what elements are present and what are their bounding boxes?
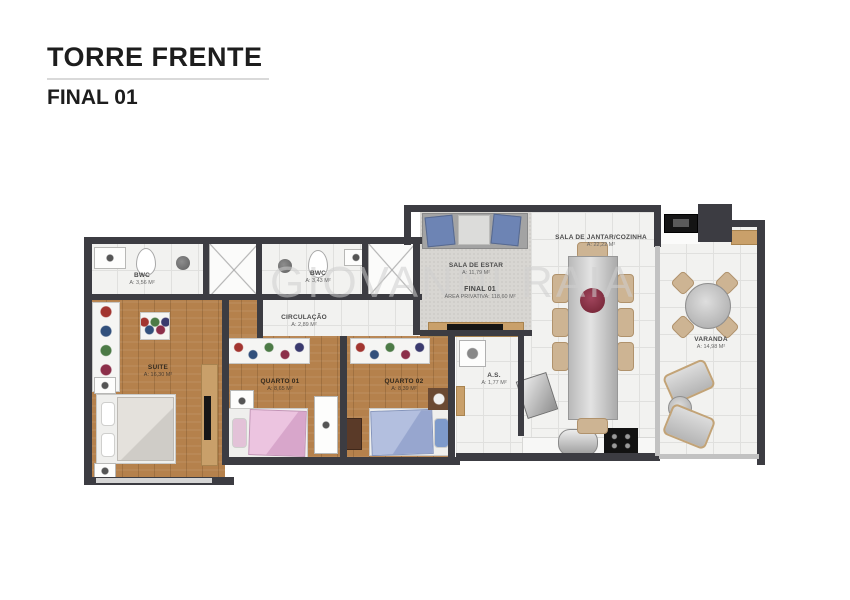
wall-top-center: [404, 205, 660, 212]
room-name: SALA DE JANTAR/COZINHA: [555, 234, 647, 241]
bedroom2-pouf: [428, 388, 450, 410]
unit-name: FINAL 01: [444, 286, 515, 293]
washing-machine: [459, 340, 486, 367]
shaft-1: [209, 243, 259, 297]
title-block: TORRE FRENTE FINAL 01: [47, 42, 269, 110]
wall-barbecue-right: [698, 204, 732, 242]
room-label-sala-jantar-cozinha: SALA DE JANTAR/COZINHA A: 22,22 M²: [555, 234, 647, 248]
cooktop: [604, 428, 638, 454]
sofa-cushion-right: [491, 214, 522, 247]
bedroom1-wardrobe: [228, 338, 310, 364]
wall-top-left: [84, 237, 422, 244]
room-area: A: 16,30 M²: [144, 372, 172, 378]
wall-living-bottom: [420, 330, 532, 336]
suite-bed: [96, 394, 176, 464]
barbecue-grill: [664, 214, 698, 233]
wall-bedroom2-right: [448, 336, 455, 460]
balcony-round-table: [685, 283, 731, 329]
bedroom2-pillow: [434, 418, 449, 448]
wall-barbecue-left: [654, 205, 661, 247]
floorplan-canvas: TORRE FRENTE FINAL 01: [0, 0, 850, 600]
room-name: BWC: [305, 270, 330, 277]
unit-private-area: ÁREA PRIVATIVA: 118,60 M²: [444, 294, 515, 300]
suite-shelf: [140, 312, 170, 340]
room-area: A: 8,65 M²: [261, 386, 300, 392]
dining-chair-right-3: [617, 342, 634, 371]
suite-pillow-1: [101, 402, 115, 426]
balcony-bench: [731, 230, 760, 245]
wall-left: [84, 237, 92, 485]
room-name: BWC: [129, 272, 154, 279]
room-area: A: 1,77 M²: [481, 380, 506, 386]
suite-tv: [204, 396, 211, 440]
title-divider: [47, 78, 269, 80]
plan-title: TORRE FRENTE: [47, 42, 269, 73]
wall-living-left: [413, 237, 420, 335]
dining-chair-right-2: [617, 308, 634, 337]
dining-chair-right-1: [617, 274, 634, 303]
bedroom1-pillow: [232, 418, 247, 448]
dining-table: [568, 256, 618, 420]
wall-hall-divider: [257, 294, 263, 338]
sofa-cushion-center: [458, 215, 490, 245]
wall-bathrooms-bottom: [84, 294, 422, 300]
service-door: [456, 386, 465, 416]
room-label-area-servico: A.S. A: 1,77 M²: [481, 372, 506, 386]
room-area: A: 2,89 M²: [281, 322, 327, 328]
room-label-varanda: VARANDA A: 14,98 M²: [694, 336, 727, 350]
room-name: A.S.: [481, 372, 506, 379]
suite-window: [96, 478, 212, 483]
room-name: QUARTO 02: [385, 378, 424, 385]
wall-right: [757, 220, 765, 465]
sofa-cushion-left: [425, 215, 456, 248]
room-area: A: 22,22 M²: [555, 242, 647, 248]
room-area: A: 3,43 M²: [305, 278, 330, 284]
bedroom1-bed: [228, 408, 308, 458]
room-name: CIRCULAÇÃO: [281, 314, 327, 321]
dining-chair-left-2: [552, 308, 569, 337]
room-name: SUITE: [144, 364, 172, 371]
unit-summary-label: FINAL 01 ÁREA PRIVATIVA: 118,60 M²: [444, 286, 515, 300]
dining-chair-left-1: [552, 274, 569, 303]
bedroom1-blanket: [248, 409, 307, 457]
room-name: VARANDA: [694, 336, 727, 343]
room-label-sala-de-estar: SALA DE ESTAR A: 11,79 M²: [449, 262, 503, 276]
wall-between-bedrooms: [340, 336, 347, 460]
room-name: SALA DE ESTAR: [449, 262, 503, 269]
suite-pillow-2: [101, 433, 115, 457]
room-label-quarto-02: QUARTO 02 A: 8,39 M²: [385, 378, 424, 392]
wall-bwc1-shaft: [203, 237, 209, 297]
bedroom2-blanket: [370, 409, 434, 456]
wall-bwc2-shaft2: [362, 237, 368, 297]
room-label-bwc-suite: BWC A: 3,56 M²: [129, 272, 154, 286]
room-area: A: 14,98 M²: [694, 344, 727, 350]
room-label-bwc-social: BWC A: 3,43 M²: [305, 270, 330, 284]
wall-shaft-bwc2: [256, 237, 262, 297]
dining-chair-bottom: [577, 418, 608, 434]
room-area: A: 11,79 M²: [449, 270, 503, 276]
bedroom2-wardrobe: [350, 338, 430, 364]
balcony-glass-rail: [659, 454, 759, 459]
bwc1-vanity: [94, 247, 126, 269]
room-area: A: 3,56 M²: [129, 280, 154, 286]
bedroom1-desk: [314, 396, 338, 454]
wall-suite-right: [222, 294, 229, 462]
room-area: A: 8,39 M²: [385, 386, 424, 392]
wall-top-connector: [404, 205, 411, 245]
room-name: QUARTO 01: [261, 378, 300, 385]
balcony-glass-divider: [655, 246, 660, 456]
bwc2-shower-icon: [278, 259, 292, 273]
shaft-2: [368, 243, 416, 297]
suite-blanket: [117, 397, 174, 461]
room-label-suite: SUITE A: 16,30 M²: [144, 364, 172, 378]
suite-nightstand-top: [94, 377, 116, 394]
plan-subtitle: FINAL 01: [47, 86, 269, 110]
wall-service-right: [518, 336, 524, 436]
wall-kitchen-bottom: [456, 453, 660, 461]
dining-chair-left-3: [552, 342, 569, 371]
bedroom2-bed: [369, 408, 452, 456]
bwc1-shower-icon: [176, 256, 190, 270]
flower-centerpiece: [580, 288, 605, 313]
room-label-circulacao: CIRCULAÇÃO A: 2,89 M²: [281, 314, 327, 328]
room-label-quarto-01: QUARTO 01 A: 8,65 M²: [261, 378, 300, 392]
